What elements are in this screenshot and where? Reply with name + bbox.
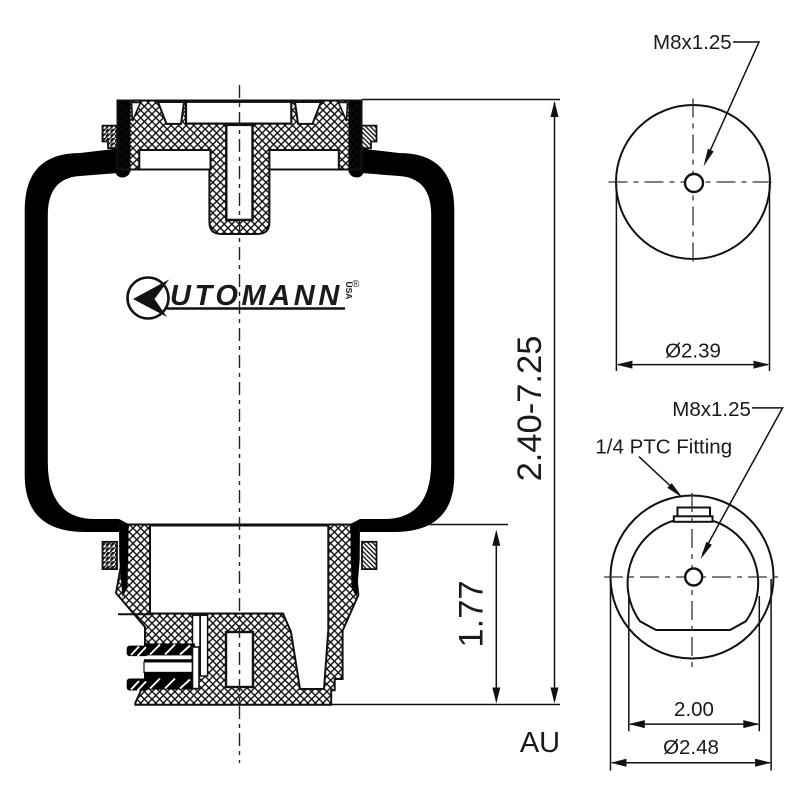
svg-text:2.40-7.25: 2.40-7.25 [511, 336, 549, 482]
svg-text:®: ® [352, 279, 360, 290]
svg-text:Ø2.39: Ø2.39 [665, 340, 721, 363]
svg-text:UTOMANN: UTOMANN [170, 280, 343, 312]
svg-text:1.77: 1.77 [453, 580, 491, 647]
svg-text:Ø2.48: Ø2.48 [663, 736, 719, 759]
svg-text:M8x1.25: M8x1.25 [653, 31, 732, 54]
svg-text:1/4 PTC Fitting: 1/4 PTC Fitting [595, 436, 732, 459]
svg-text:AU: AU [520, 727, 560, 759]
svg-text:2.00: 2.00 [674, 698, 714, 721]
svg-text:M8x1.25: M8x1.25 [672, 398, 751, 421]
